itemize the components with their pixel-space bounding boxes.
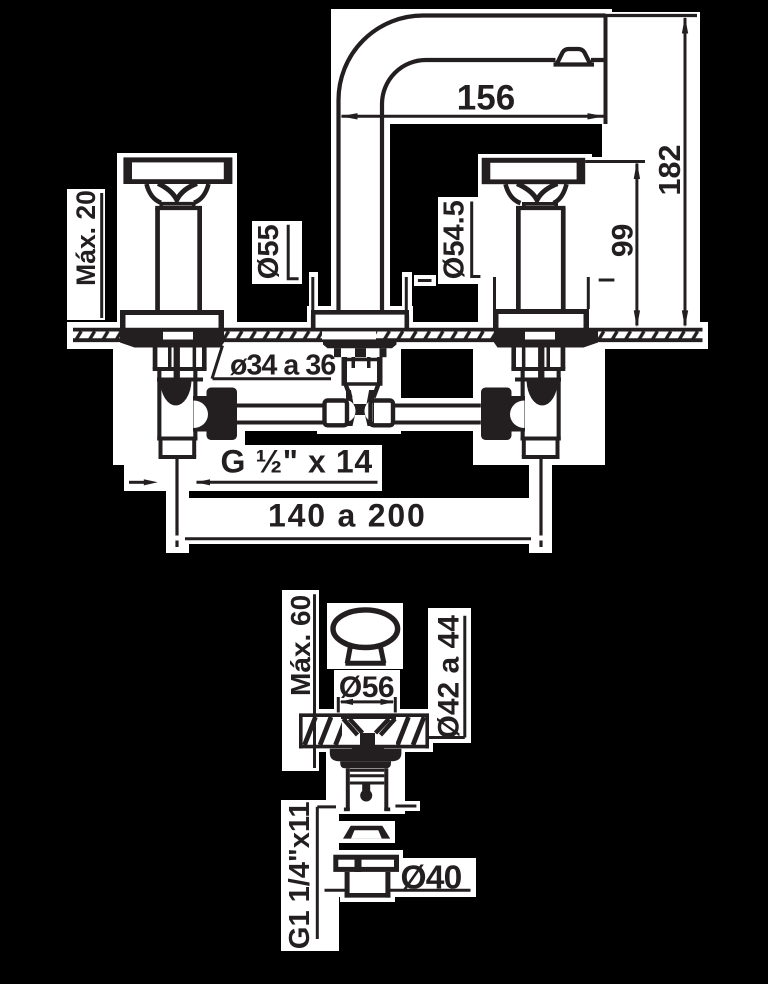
- svg-text:Ø40: Ø40: [401, 860, 462, 897]
- svg-text:140 a 200: 140 a 200: [268, 497, 427, 533]
- svg-text:Máx. 20: Máx. 20: [71, 190, 101, 286]
- svg-text:G ½" x 14: G ½" x 14: [221, 444, 373, 480]
- svg-text:Ø54.5: Ø54.5: [439, 200, 471, 279]
- svg-text:Ø42 a 44: Ø42 a 44: [433, 615, 466, 739]
- svg-text:Ø56: Ø56: [339, 671, 394, 704]
- svg-text:Ø55: Ø55: [253, 224, 285, 279]
- svg-text:Máx. 60: Máx. 60: [285, 595, 316, 696]
- svg-text:182: 182: [653, 145, 687, 196]
- svg-text:99: 99: [607, 224, 640, 257]
- svg-text:156: 156: [457, 79, 515, 118]
- svg-text:G1 1/4"x11: G1 1/4"x11: [284, 802, 316, 950]
- svg-text:ø34 a 36: ø34 a 36: [230, 350, 335, 382]
